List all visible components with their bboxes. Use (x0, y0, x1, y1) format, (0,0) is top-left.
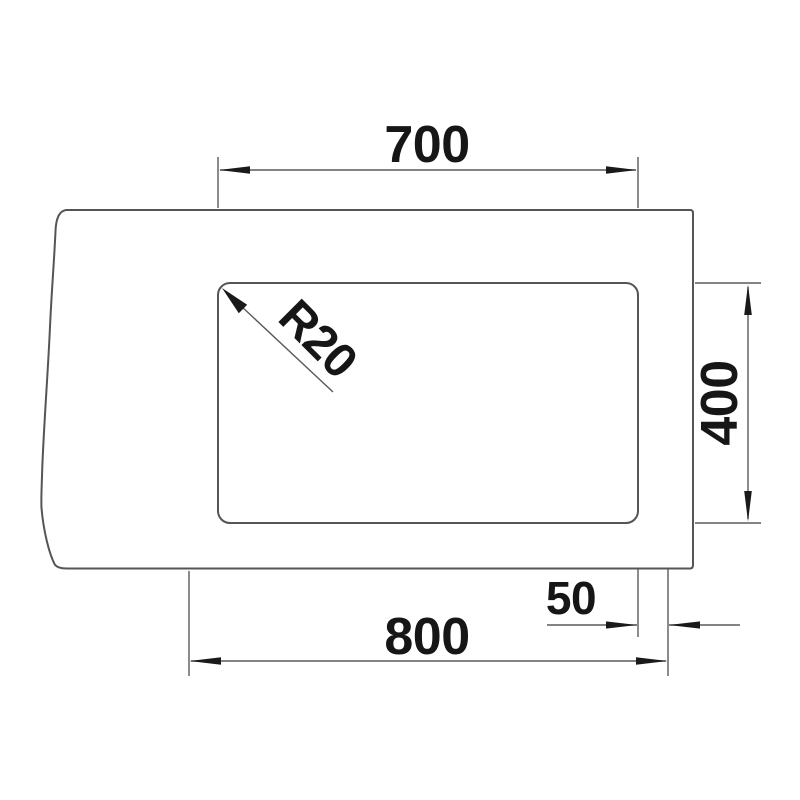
dim-label-edge-offset: 50 (546, 572, 596, 624)
dim-label-inner-height: 400 (691, 360, 749, 445)
arrowhead-left (190, 657, 222, 665)
arrowhead-up (744, 285, 752, 316)
inner-width-dimension: 700 (218, 116, 638, 208)
dim-label-inner-width: 700 (384, 116, 469, 174)
corner-radius-callout: R20 (222, 288, 367, 392)
technical-drawing-page: 700 400 50 800 (0, 0, 800, 800)
sink-outline (41, 210, 693, 569)
dim-label-corner-radius: R20 (268, 290, 367, 389)
arrowhead-right (606, 166, 637, 174)
arrowhead-right (606, 621, 638, 628)
arrowhead-left (669, 621, 701, 628)
arrowhead-radius (222, 288, 247, 313)
sink-dimension-drawing: 700 400 50 800 (0, 0, 800, 800)
dim-label-outer-width: 800 (384, 608, 469, 666)
arrowhead-right (636, 657, 668, 665)
arrowhead-left (219, 166, 250, 174)
arrowhead-down (744, 491, 752, 522)
inner-height-dimension: 400 (691, 283, 761, 523)
